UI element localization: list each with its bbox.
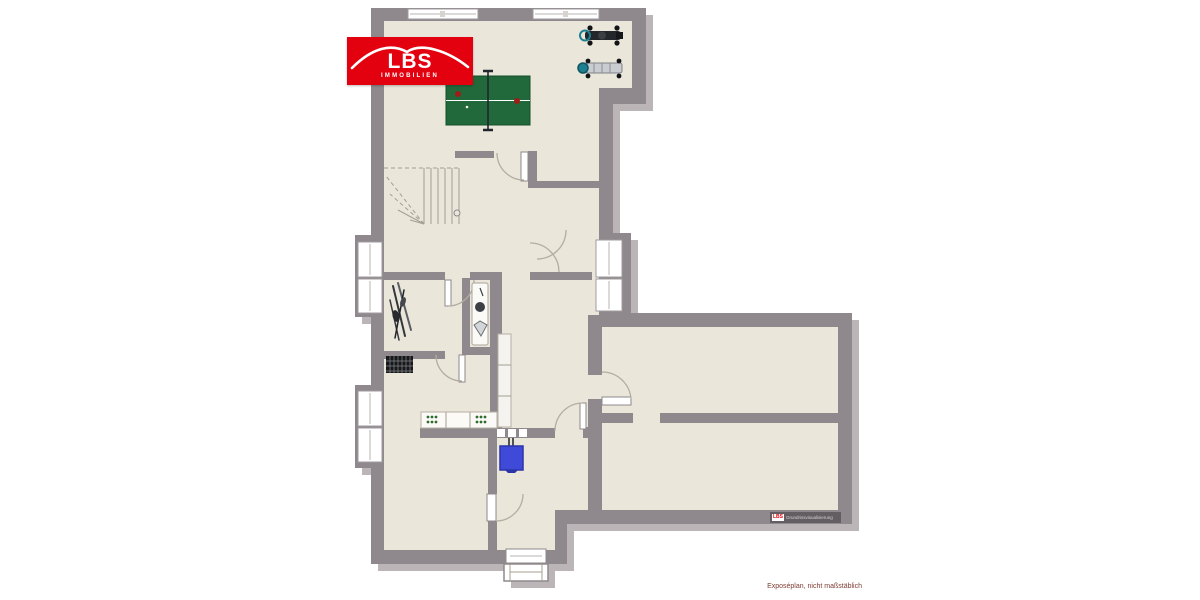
plan-caption: Exposéplan, nicht maßstäblich	[600, 583, 862, 590]
window-right-1	[596, 240, 622, 277]
window-right-2	[596, 279, 622, 311]
door-entrance	[506, 549, 546, 563]
logo-brand-text: LBS	[347, 51, 473, 72]
wall-tiles	[497, 429, 527, 437]
wc-fixtures	[472, 283, 488, 345]
plan-watermark: LBS Grundrissvisualisierung	[770, 512, 841, 523]
ball	[466, 106, 469, 109]
floor-plan-drawing	[0, 0, 1200, 600]
window-top-left	[408, 9, 478, 19]
logo-subtitle-text: IMMOBILIEN	[347, 73, 473, 79]
window-left-lower-2	[358, 428, 382, 462]
window-top-right	[533, 9, 599, 19]
paddle-right	[514, 98, 520, 104]
shelf	[498, 334, 511, 427]
window-left-upper-2	[358, 279, 382, 313]
lbs-logo: LBS IMMOBILIEN	[347, 37, 473, 85]
paddle-left	[455, 91, 461, 97]
window-left-lower-1	[358, 391, 382, 426]
entrance-steps	[504, 564, 548, 581]
laundry-counter	[421, 412, 497, 428]
watermark-text: Grundrissvisualisierung	[786, 515, 833, 520]
floor-plan-page: LBS IMMOBILIEN LBS Grundrissvisualisieru…	[0, 0, 1200, 600]
radiator	[386, 356, 413, 373]
window-left-upper-1	[358, 242, 382, 277]
toilet	[475, 302, 485, 312]
watermark-brand: LBS	[772, 514, 784, 521]
